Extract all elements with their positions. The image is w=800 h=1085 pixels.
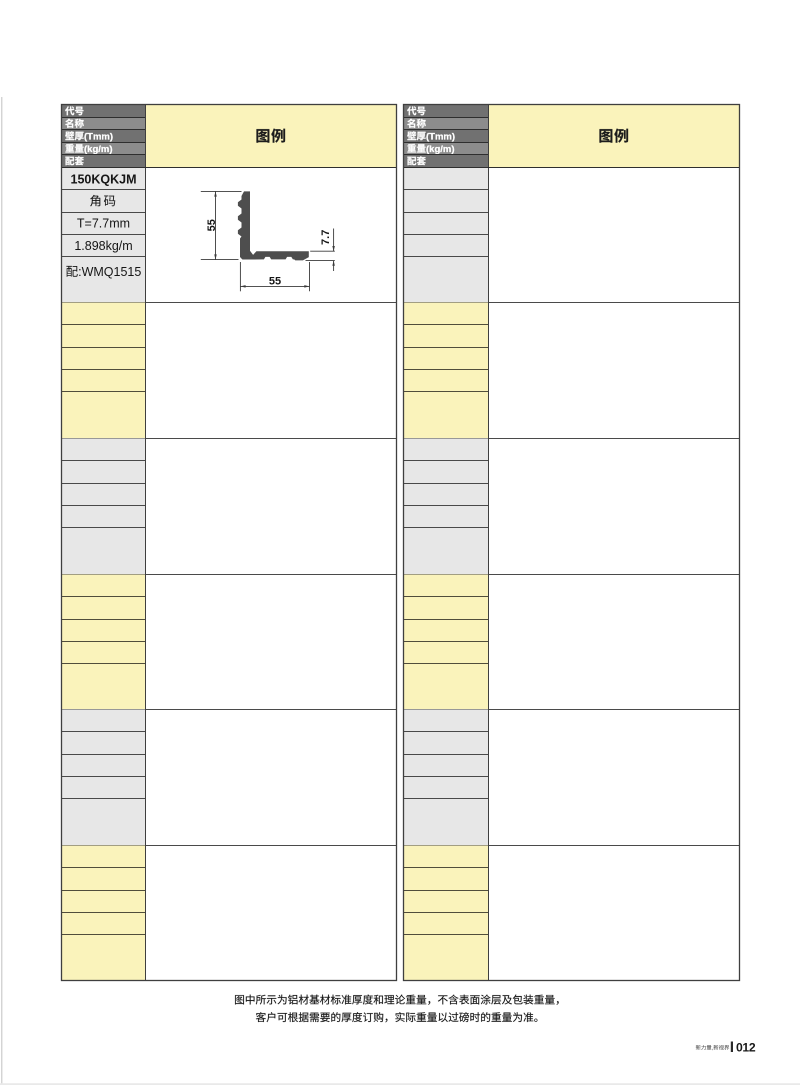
svg-text:012: 012 [736, 1040, 756, 1054]
svg-text:(Tmm): (Tmm) [84, 131, 113, 142]
svg-text:(Tmm): (Tmm) [426, 131, 455, 142]
svg-text:T=7.7mm: T=7.7mm [77, 217, 130, 231]
svg-text:(kg/m): (kg/m) [84, 144, 113, 155]
svg-text:7.7: 7.7 [320, 230, 332, 245]
svg-text::WMQ1515: :WMQ1515 [78, 265, 141, 279]
svg-text:(kg/m): (kg/m) [426, 144, 455, 155]
svg-text:150KQKJM: 150KQKJM [71, 172, 137, 186]
svg-text:1.898kg/m: 1.898kg/m [74, 239, 132, 253]
svg-text:55: 55 [206, 219, 218, 231]
svg-text:55: 55 [269, 275, 281, 287]
